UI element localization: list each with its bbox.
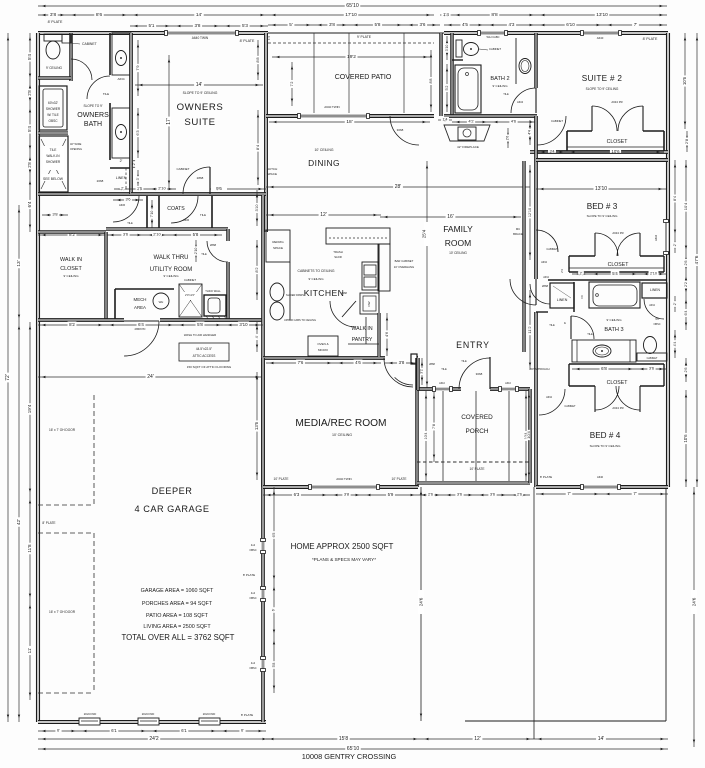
svg-text:6': 6' bbox=[241, 728, 244, 733]
svg-text:1'4: 1'4 bbox=[443, 118, 448, 122]
svg-text:2868: 2868 bbox=[542, 284, 549, 288]
svg-text:SHOWER: SHOWER bbox=[46, 160, 61, 164]
svg-text:TILE: TILE bbox=[587, 332, 593, 336]
svg-text:9' CEILING: 9' CEILING bbox=[46, 66, 63, 70]
svg-text:50" APPROACH: 50" APPROACH bbox=[531, 367, 550, 371]
svg-text:3'6: 3'6 bbox=[490, 492, 496, 497]
svg-text:10008 GENTRY CROSSING: 10008 GENTRY CROSSING bbox=[302, 752, 397, 761]
svg-text:OBSC: OBSC bbox=[249, 596, 256, 600]
svg-text:3'6: 3'6 bbox=[649, 366, 655, 371]
svg-text:16' x 7' OH DOOR: 16' x 7' OH DOOR bbox=[49, 610, 76, 614]
svg-text:THICK WALL: THICK WALL bbox=[205, 289, 221, 293]
svg-text:A634: A634 bbox=[117, 77, 124, 81]
svg-text:2'6: 2'6 bbox=[517, 493, 522, 497]
svg-text:1'4: 1'4 bbox=[443, 12, 449, 17]
svg-text:7': 7' bbox=[634, 22, 638, 27]
svg-text:10'6: 10'6 bbox=[611, 149, 620, 154]
svg-text:3'10: 3'10 bbox=[255, 204, 259, 211]
svg-text:LINEN: LINEN bbox=[650, 288, 661, 292]
svg-text:SPACE: SPACE bbox=[267, 172, 277, 176]
svg-text:10' CEILING: 10' CEILING bbox=[315, 148, 334, 152]
svg-text:UPPER CABS TO CEILING: UPPER CABS TO CEILING bbox=[284, 318, 316, 322]
svg-text:CLOSET: CLOSET bbox=[607, 380, 629, 386]
svg-text:19'4: 19'4 bbox=[27, 404, 32, 413]
svg-text:OVEN &: OVEN & bbox=[317, 342, 328, 346]
svg-text:6'4: 6'4 bbox=[27, 201, 32, 207]
svg-text:4'4: 4'4 bbox=[673, 342, 677, 347]
svg-text:2'6: 2'6 bbox=[684, 261, 688, 266]
svg-text:15'8: 15'8 bbox=[339, 736, 349, 742]
svg-text:CLOSET: CLOSET bbox=[60, 266, 82, 272]
svg-text:72': 72' bbox=[5, 374, 11, 381]
svg-text:OBSC: OBSC bbox=[249, 666, 256, 670]
svg-text:KITCHEN: KITCHEN bbox=[304, 288, 345, 298]
svg-text:TILE: TILE bbox=[201, 252, 207, 256]
svg-text:2'10: 2'10 bbox=[153, 232, 161, 237]
svg-text:W/ TILE: W/ TILE bbox=[47, 113, 58, 117]
svg-text:42': 42' bbox=[16, 519, 22, 525]
svg-text:10' PLATE: 10' PLATE bbox=[274, 477, 289, 481]
svg-text:TRASH: TRASH bbox=[333, 250, 342, 254]
svg-text:SLOPE TO 9' CEILING: SLOPE TO 9' CEILING bbox=[183, 91, 218, 95]
svg-text:FAMILY: FAMILY bbox=[443, 224, 473, 234]
svg-text:2'8: 2'8 bbox=[27, 162, 32, 168]
svg-text:WASH TO AIR HANDLER: WASH TO AIR HANDLER bbox=[184, 333, 216, 337]
svg-text:A636: A636 bbox=[183, 218, 190, 222]
svg-text:UTILITY ROOM: UTILITY ROOM bbox=[150, 267, 193, 273]
svg-text:8' PLATE: 8' PLATE bbox=[540, 475, 552, 479]
svg-text:8'2: 8'2 bbox=[69, 322, 75, 327]
svg-text:2868: 2868 bbox=[210, 243, 217, 247]
svg-text:4'6: 4'6 bbox=[355, 360, 361, 365]
svg-text:MC: MC bbox=[516, 227, 520, 231]
svg-text:6'5: 6'5 bbox=[272, 533, 276, 538]
svg-text:WH: WH bbox=[159, 300, 164, 304]
svg-text:A634 PR: A634 PR bbox=[611, 100, 622, 104]
svg-text:14': 14' bbox=[196, 82, 203, 88]
svg-text:ROOM: ROOM bbox=[445, 238, 471, 248]
svg-text:11'8: 11'8 bbox=[27, 544, 32, 553]
svg-text:1'4: 1'4 bbox=[267, 36, 271, 40]
svg-text:4'4: 4'4 bbox=[528, 130, 532, 135]
svg-text:20x6 FND: 20x6 FND bbox=[203, 712, 216, 716]
svg-text:CABINET: CABINET bbox=[184, 278, 196, 282]
svg-text:3068: 3068 bbox=[397, 128, 404, 132]
svg-text:5': 5' bbox=[289, 22, 293, 27]
svg-text:CABINET: CABINET bbox=[82, 42, 97, 46]
svg-text:MICRO: MICRO bbox=[318, 348, 329, 352]
svg-text:3'6: 3'6 bbox=[420, 22, 426, 27]
svg-text:DW: DW bbox=[367, 301, 371, 306]
svg-text:5'1: 5'1 bbox=[149, 23, 155, 28]
svg-text:3'6: 3'6 bbox=[126, 198, 131, 202]
svg-text:ATTIC ACCESS: ATTIC ACCESS bbox=[193, 354, 216, 358]
svg-text:2'10: 2'10 bbox=[158, 186, 166, 191]
svg-text:A634 PR: A634 PR bbox=[612, 231, 623, 235]
svg-text:PORCH: PORCH bbox=[465, 428, 488, 435]
svg-text:PATIO AREA = 108 SQFT: PATIO AREA = 108 SQFT bbox=[146, 613, 209, 619]
svg-text:10' CEILING: 10' CEILING bbox=[449, 251, 467, 255]
svg-text:6': 6' bbox=[272, 608, 276, 611]
svg-text:16' x 7' OH DOOR: 16' x 7' OH DOOR bbox=[49, 428, 76, 432]
svg-text:7': 7' bbox=[633, 491, 636, 496]
svg-text:A634: A634 bbox=[541, 261, 547, 264]
svg-text:DINING: DINING bbox=[308, 158, 340, 168]
svg-text:BED # 4: BED # 4 bbox=[590, 431, 621, 440]
svg-text:9' CEILING: 9' CEILING bbox=[63, 274, 79, 278]
svg-text:8' PLATE: 8' PLATE bbox=[241, 713, 253, 717]
svg-text:24': 24' bbox=[147, 374, 154, 380]
svg-text:A634: A634 bbox=[654, 234, 658, 241]
svg-text:8'2: 8'2 bbox=[254, 267, 259, 273]
svg-text:2'8: 2'8 bbox=[684, 138, 689, 144]
svg-text:10'4: 10'4 bbox=[424, 432, 428, 439]
svg-text:8' PLATE: 8' PLATE bbox=[42, 521, 55, 525]
svg-text:10' CEILING: 10' CEILING bbox=[332, 433, 352, 437]
svg-text:9' CEILING: 9' CEILING bbox=[606, 318, 622, 322]
svg-text:2868 PD: 2868 PD bbox=[135, 327, 146, 331]
svg-text:9' CEILING: 9' CEILING bbox=[163, 274, 179, 278]
svg-text:2468: 2468 bbox=[341, 291, 347, 295]
svg-text:14': 14' bbox=[598, 736, 605, 742]
svg-text:WALK THRU: WALK THRU bbox=[153, 255, 188, 261]
svg-text:3'10: 3'10 bbox=[445, 45, 449, 52]
svg-text:47'6: 47'6 bbox=[694, 255, 700, 264]
svg-text:TILE: TILE bbox=[441, 367, 447, 371]
svg-text:10'6: 10'6 bbox=[682, 76, 687, 85]
svg-text:TILE: TILE bbox=[461, 359, 467, 363]
svg-text:6'8: 6'8 bbox=[601, 366, 607, 371]
svg-text:TILE: TILE bbox=[50, 148, 57, 152]
svg-text:CABINET: CABINET bbox=[564, 404, 576, 408]
svg-text:2068: 2068 bbox=[97, 179, 104, 183]
svg-text:SLOPE TO 9' CEILING: SLOPE TO 9' CEILING bbox=[587, 214, 618, 218]
svg-text:13'6: 13'6 bbox=[254, 421, 259, 430]
svg-text:*PLANS & SPECS MAY VARY*: *PLANS & SPECS MAY VARY* bbox=[312, 557, 376, 562]
svg-text:BRACE: BRACE bbox=[513, 232, 523, 236]
svg-text:A310: A310 bbox=[439, 382, 445, 385]
svg-text:8' PLATE: 8' PLATE bbox=[643, 37, 658, 41]
svg-text:2'6: 2'6 bbox=[506, 136, 510, 141]
svg-text:5'4: 5'4 bbox=[612, 271, 618, 276]
svg-text:TILE: TILE bbox=[503, 92, 509, 96]
svg-text:COVERED: COVERED bbox=[461, 414, 493, 421]
svg-text:3'6: 3'6 bbox=[123, 232, 129, 237]
svg-text:5'3: 5'3 bbox=[242, 23, 248, 28]
svg-text:2'2: 2'2 bbox=[684, 282, 688, 287]
svg-text:4x4: 4x4 bbox=[251, 591, 256, 595]
svg-text:LIVING AREA = 2500 SQFT: LIVING AREA = 2500 SQFT bbox=[143, 624, 211, 630]
svg-text:2'6: 2'6 bbox=[428, 493, 433, 497]
svg-text:HUTCH: HUTCH bbox=[267, 167, 278, 171]
svg-text:3'2: 3'2 bbox=[420, 369, 424, 374]
svg-text:2': 2' bbox=[673, 243, 677, 246]
svg-text:SHOWER: SHOWER bbox=[46, 107, 61, 111]
svg-text:CABINET: CABINET bbox=[489, 47, 501, 51]
svg-text:3': 3' bbox=[136, 177, 140, 180]
svg-text:19'2: 19'2 bbox=[347, 54, 356, 60]
svg-text:A310: A310 bbox=[505, 382, 511, 385]
svg-text:3'4: 3'4 bbox=[550, 150, 555, 154]
svg-text:MEDIA/REC ROOM: MEDIA/REC ROOM bbox=[295, 418, 386, 429]
svg-text:24'2: 24'2 bbox=[149, 736, 159, 742]
svg-text:WALK IN: WALK IN bbox=[60, 257, 82, 263]
svg-text:SLOPE TO 9': SLOPE TO 9' bbox=[83, 104, 102, 108]
svg-text:3068: 3068 bbox=[476, 372, 483, 376]
svg-text:REFRIG: REFRIG bbox=[272, 240, 284, 244]
svg-text:3'8: 3'8 bbox=[50, 12, 57, 18]
svg-text:10' PLATE: 10' PLATE bbox=[392, 477, 407, 481]
svg-text:17'10: 17'10 bbox=[345, 12, 357, 18]
svg-text:10' OVERHANG: 10' OVERHANG bbox=[394, 265, 414, 269]
svg-text:A640 TWIN: A640 TWIN bbox=[192, 36, 209, 40]
svg-text:9' CEILING: 9' CEILING bbox=[492, 84, 508, 88]
svg-text:3'8: 3'8 bbox=[195, 23, 201, 28]
svg-text:12'10: 12'10 bbox=[528, 208, 532, 217]
svg-text:6'1: 6'1 bbox=[111, 728, 117, 733]
svg-text:4x4: 4x4 bbox=[251, 661, 256, 665]
svg-text:6'3: 6'3 bbox=[294, 492, 300, 497]
svg-text:2': 2' bbox=[673, 302, 677, 305]
svg-text:PORCHES AREA = 94 SQFT: PORCHES AREA = 94 SQFT bbox=[142, 601, 213, 607]
svg-text:TILE: TILE bbox=[127, 221, 133, 225]
svg-text:3'6: 3'6 bbox=[457, 492, 463, 497]
svg-text:3'10: 3'10 bbox=[239, 322, 248, 327]
svg-text:BAR CABINET: BAR CABINET bbox=[395, 259, 414, 263]
svg-text:COVERED PATIO: COVERED PATIO bbox=[335, 74, 392, 81]
svg-text:ENTRY: ENTRY bbox=[456, 340, 490, 350]
svg-text:GARAGE AREA = 1060 SQFT: GARAGE AREA = 1060 SQFT bbox=[141, 588, 214, 594]
svg-text:6'4: 6'4 bbox=[138, 322, 144, 327]
svg-text:CLOSET: CLOSET bbox=[608, 262, 630, 268]
svg-text:8'6: 8'6 bbox=[96, 12, 103, 18]
svg-text:BATH: BATH bbox=[84, 121, 102, 128]
svg-text:9'6: 9'6 bbox=[216, 186, 222, 191]
svg-text:40" WIDE: 40" WIDE bbox=[70, 142, 82, 146]
svg-text:DEEPER: DEEPER bbox=[152, 486, 193, 496]
svg-text:150 SQFT OF ATTIC FLOORING: 150 SQFT OF ATTIC FLOORING bbox=[187, 365, 232, 369]
svg-text:CABINET: CABINET bbox=[551, 119, 563, 123]
svg-text:10'4: 10'4 bbox=[526, 431, 531, 439]
svg-text:SLDR: SLDR bbox=[334, 255, 341, 259]
svg-text:WALK-IN: WALK-IN bbox=[46, 154, 60, 158]
svg-text:OWNERS: OWNERS bbox=[77, 112, 109, 119]
svg-text:OBSC: OBSC bbox=[48, 119, 58, 123]
svg-text:A634 PR: A634 PR bbox=[612, 406, 623, 410]
svg-text:MECH: MECH bbox=[134, 297, 147, 302]
svg-text:8' PLATE: 8' PLATE bbox=[240, 39, 255, 43]
svg-text:5'8: 5'8 bbox=[197, 322, 203, 327]
svg-text:8'8: 8'8 bbox=[491, 12, 498, 18]
svg-text:TILE: TILE bbox=[549, 323, 555, 327]
svg-text:7'8: 7'8 bbox=[432, 424, 436, 429]
svg-text:17': 17' bbox=[166, 118, 172, 125]
svg-text:18': 18' bbox=[346, 119, 352, 125]
svg-text:CABINETS TO CEILING: CABINETS TO CEILING bbox=[298, 269, 335, 273]
svg-text:2868: 2868 bbox=[197, 176, 204, 180]
svg-text:BED # 3: BED # 3 bbox=[587, 202, 618, 211]
svg-text:6'4: 6'4 bbox=[684, 311, 688, 316]
svg-text:4'2: 4'2 bbox=[468, 119, 474, 124]
svg-text:8'4: 8'4 bbox=[673, 196, 677, 201]
svg-text:TILE: TILE bbox=[200, 213, 206, 217]
svg-text:LINEN: LINEN bbox=[557, 298, 568, 302]
svg-text:11'2: 11'2 bbox=[527, 326, 532, 334]
svg-text:4 CAR GARAGE: 4 CAR GARAGE bbox=[135, 504, 210, 514]
svg-text:TILE: TILE bbox=[103, 92, 109, 96]
svg-text:12': 12' bbox=[474, 736, 481, 742]
svg-text:9' PLATE: 9' PLATE bbox=[357, 35, 372, 39]
svg-text:7': 7' bbox=[567, 491, 570, 496]
svg-text:OWNERS: OWNERS bbox=[177, 102, 224, 113]
svg-text:CABINET: CABINET bbox=[176, 167, 189, 171]
svg-text:3'8: 3'8 bbox=[329, 22, 335, 27]
svg-text:4'6: 4'6 bbox=[511, 119, 517, 124]
svg-text:5'8: 5'8 bbox=[272, 663, 276, 668]
svg-text:OPENING: OPENING bbox=[70, 147, 82, 151]
svg-text:A634: A634 bbox=[517, 100, 524, 104]
svg-text:10'4: 10'4 bbox=[683, 202, 688, 210]
svg-text:2'10: 2'10 bbox=[650, 272, 657, 276]
svg-text:28': 28' bbox=[395, 184, 402, 190]
svg-text:14': 14' bbox=[196, 12, 202, 18]
svg-text:2'6: 2'6 bbox=[684, 368, 688, 373]
svg-text:A640 TWIN: A640 TWIN bbox=[324, 105, 339, 109]
svg-text:2': 2' bbox=[120, 159, 123, 163]
svg-text:A634: A634 bbox=[649, 304, 655, 307]
svg-text:6'10: 6'10 bbox=[566, 22, 575, 27]
svg-text:13'10: 13'10 bbox=[596, 12, 608, 18]
svg-text:8' PLATE: 8' PLATE bbox=[243, 573, 255, 577]
svg-text:A640: A640 bbox=[597, 475, 604, 479]
svg-text:10'6: 10'6 bbox=[683, 434, 688, 443]
svg-text:16': 16' bbox=[447, 214, 454, 220]
svg-text:24'6: 24'6 bbox=[419, 597, 424, 606]
svg-text:7'9: 7'9 bbox=[135, 65, 140, 71]
svg-text:2'0"x1'0": 2'0"x1'0" bbox=[185, 293, 195, 297]
svg-text:A640 TWIN: A640 TWIN bbox=[336, 477, 351, 481]
svg-text:7'6: 7'6 bbox=[298, 360, 304, 365]
svg-text:8'8: 8'8 bbox=[429, 79, 433, 84]
svg-text:OBSC: OBSC bbox=[249, 548, 256, 552]
svg-text:60'x32': 60'x32' bbox=[48, 101, 58, 105]
svg-text:A634: A634 bbox=[546, 396, 552, 399]
svg-text:SLOPE TO 9' CEILING: SLOPE TO 9' CEILING bbox=[590, 444, 621, 448]
svg-text:42" FIREPLACE: 42" FIREPLACE bbox=[457, 145, 479, 149]
svg-text:25'4: 25'4 bbox=[422, 229, 427, 238]
svg-text:6'1: 6'1 bbox=[181, 728, 187, 733]
svg-text:9' CEILING: 9' CEILING bbox=[308, 277, 324, 281]
svg-text:4'6: 4'6 bbox=[384, 331, 389, 337]
svg-text:2': 2' bbox=[121, 187, 124, 191]
svg-text:A640: A640 bbox=[597, 36, 604, 40]
svg-text:8'8: 8'8 bbox=[255, 57, 260, 63]
svg-text:13': 13' bbox=[16, 260, 22, 266]
svg-text:13'10: 13'10 bbox=[595, 186, 607, 192]
svg-text:SEE BELOW: SEE BELOW bbox=[43, 177, 64, 181]
svg-text:3'8: 3'8 bbox=[52, 212, 58, 217]
svg-text:2'8: 2'8 bbox=[27, 90, 32, 96]
svg-text:LINEN: LINEN bbox=[116, 176, 127, 180]
svg-text:A636: A636 bbox=[119, 203, 126, 207]
svg-text:CABINET: CABINET bbox=[546, 247, 558, 251]
svg-text:24'6: 24'6 bbox=[692, 597, 697, 606]
svg-text:4'5: 4'5 bbox=[462, 22, 468, 27]
svg-text:2'10: 2'10 bbox=[194, 248, 198, 255]
svg-text:2': 2' bbox=[580, 272, 583, 276]
svg-text:SPACE: SPACE bbox=[273, 246, 283, 250]
svg-text:11': 11' bbox=[27, 648, 32, 654]
svg-text:5'2: 5'2 bbox=[445, 86, 449, 91]
svg-text:12': 12' bbox=[320, 212, 327, 218]
svg-text:COATS: COATS bbox=[167, 206, 185, 212]
svg-text:SUITE: SUITE bbox=[184, 117, 215, 128]
svg-text:W/H CABC: W/H CABC bbox=[487, 35, 500, 39]
svg-text:CABINET: CABINET bbox=[647, 357, 658, 360]
svg-text:6': 6' bbox=[57, 728, 60, 733]
svg-text:5'4: 5'4 bbox=[27, 54, 32, 60]
svg-text:65'10: 65'10 bbox=[346, 3, 359, 9]
svg-text:SLOPE TO 9' CEILING: SLOPE TO 9' CEILING bbox=[586, 87, 619, 91]
svg-text:5'8: 5'8 bbox=[193, 232, 199, 237]
svg-text:1'6: 1'6 bbox=[580, 295, 584, 299]
svg-text:BATH 3: BATH 3 bbox=[604, 327, 623, 333]
svg-text:2'4: 2'4 bbox=[560, 269, 564, 273]
svg-text:HOME APPROX 2500 SQFT: HOME APPROX 2500 SQFT bbox=[291, 542, 394, 551]
svg-text:10' PLATE: 10' PLATE bbox=[470, 467, 485, 471]
svg-text:5'8: 5'8 bbox=[375, 22, 381, 27]
svg-text:SLIDER DRWS: SLIDER DRWS bbox=[286, 293, 304, 297]
svg-text:PANTRY: PANTRY bbox=[352, 337, 373, 343]
svg-text:3'8: 3'8 bbox=[399, 360, 405, 365]
svg-text:4x4: 4x4 bbox=[251, 543, 256, 547]
svg-text:3'8: 3'8 bbox=[344, 492, 350, 497]
svg-text:8' PLATE: 8' PLATE bbox=[48, 20, 63, 24]
svg-text:5'4: 5'4 bbox=[27, 126, 32, 132]
svg-text:6'3: 6'3 bbox=[135, 130, 140, 136]
svg-text:SUITE # 2: SUITE # 2 bbox=[582, 74, 623, 83]
svg-text:BATH 2: BATH 2 bbox=[490, 76, 509, 82]
svg-text:TOTAL OVER ALL = 3762 SQFT: TOTAL OVER ALL = 3762 SQFT bbox=[122, 633, 235, 642]
svg-text:OBSC: OBSC bbox=[653, 323, 660, 326]
svg-text:5'9: 5'9 bbox=[388, 492, 394, 497]
svg-text:A634: A634 bbox=[543, 276, 549, 279]
svg-text:20x6 FND: 20x6 FND bbox=[84, 712, 97, 716]
svg-text:AREA: AREA bbox=[134, 305, 146, 310]
svg-text:2868: 2868 bbox=[429, 362, 435, 366]
svg-text:4': 4' bbox=[255, 335, 259, 338]
svg-text:44.5"x22.5": 44.5"x22.5" bbox=[196, 347, 212, 351]
svg-text:WALK IN: WALK IN bbox=[351, 326, 372, 332]
svg-text:1'6: 1'6 bbox=[137, 187, 142, 191]
svg-text:CLOSET: CLOSET bbox=[607, 139, 629, 145]
svg-text:8'4: 8'4 bbox=[255, 144, 260, 150]
svg-text:4'3: 4'3 bbox=[509, 22, 515, 27]
svg-text:7'2: 7'2 bbox=[290, 82, 294, 87]
svg-text:7'10: 7'10 bbox=[150, 211, 154, 218]
svg-text:20x6 FND: 20x6 FND bbox=[142, 712, 155, 716]
